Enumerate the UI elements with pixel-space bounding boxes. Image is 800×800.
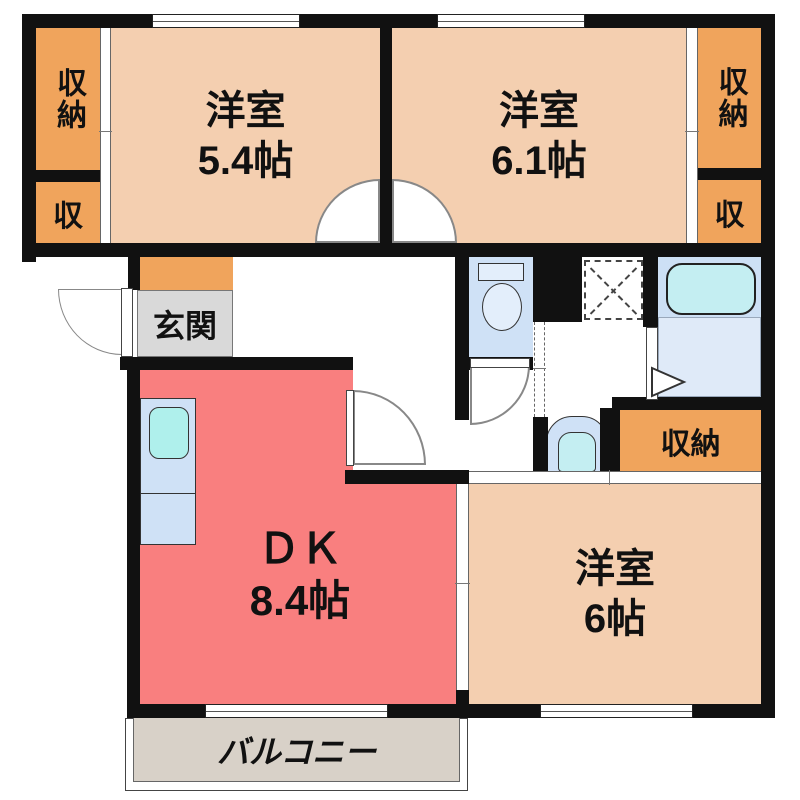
toilet-bowl-icon <box>482 283 522 331</box>
room-western-6: 洋室 6帖 <box>469 484 761 704</box>
wall <box>643 250 658 327</box>
toilet-icon <box>478 263 524 281</box>
wall <box>22 14 36 262</box>
sliding-door-icon <box>469 471 761 484</box>
entrance-step <box>137 257 233 290</box>
room-size: 6.1帖 <box>491 136 587 186</box>
wall <box>533 417 548 471</box>
window-icon <box>205 704 388 718</box>
sliding-door-icon <box>534 322 545 417</box>
closet-top-left-small: 収 <box>36 182 100 243</box>
entrance-label: 玄関 <box>153 301 217 347</box>
washing-machine-pan-icon <box>584 260 643 320</box>
closet-label: 収 <box>53 191 83 235</box>
room-name: 洋室 <box>575 544 655 594</box>
sliding-door-icon <box>456 484 469 690</box>
balcony: バルコニー <box>133 718 460 782</box>
folding-door-icon <box>650 366 688 398</box>
window-icon <box>152 14 300 28</box>
closet-label: 収納 <box>708 66 752 130</box>
window-icon <box>437 14 585 28</box>
closet-label: 収 <box>715 190 745 234</box>
door-leaf <box>346 390 354 466</box>
wall <box>761 14 775 718</box>
room-name: 洋室 <box>198 86 294 136</box>
closet-top-left: 収納 <box>36 28 100 170</box>
balcony-label: バルコニー <box>217 727 376 773</box>
wall <box>127 357 140 704</box>
kitchen-sink-icon <box>149 407 189 459</box>
wall <box>380 28 392 257</box>
room-name: 洋室 <box>491 86 587 136</box>
closet-top-right: 収納 <box>698 28 761 168</box>
closet-top-right-small: 収 <box>698 180 761 243</box>
wall <box>456 690 469 704</box>
wall <box>345 470 469 484</box>
room-size: 8.4帖 <box>250 575 350 628</box>
room-name: ＤＫ <box>250 523 350 576</box>
window-icon <box>540 704 693 718</box>
wall <box>455 243 469 420</box>
closet-label: 収納 <box>46 67 90 131</box>
room-size: 5.4帖 <box>198 136 294 186</box>
sliding-door-icon <box>100 28 111 243</box>
entrance-genkan: 玄関 <box>137 290 233 357</box>
closet-label: 収納 <box>661 419 721 463</box>
kitchen-counter-divider <box>141 493 195 494</box>
closet-bottom-right: 収納 <box>620 410 761 471</box>
wall <box>698 168 761 180</box>
room-dk-label-area: ＤＫ 8.4帖 <box>155 495 445 655</box>
bathtub-icon <box>666 263 756 315</box>
sliding-door-icon <box>686 28 698 243</box>
wall <box>128 243 140 290</box>
wall <box>533 243 582 322</box>
door-leaf <box>121 288 133 357</box>
door-swing-icon <box>470 365 530 425</box>
wall <box>22 14 775 28</box>
wall <box>600 408 620 471</box>
wall <box>612 397 761 410</box>
door-leaf <box>470 358 530 368</box>
washbasin-bowl-icon <box>558 432 596 472</box>
wall <box>120 357 353 370</box>
wall <box>36 170 100 182</box>
floor-plan: 洋室 5.4帖 洋室 6.1帖 洋室 6帖 ＤＫ 8.4帖 収納 収 収納 収 <box>0 0 800 800</box>
door-swing-icon <box>58 289 122 355</box>
room-size: 6帖 <box>575 594 655 644</box>
